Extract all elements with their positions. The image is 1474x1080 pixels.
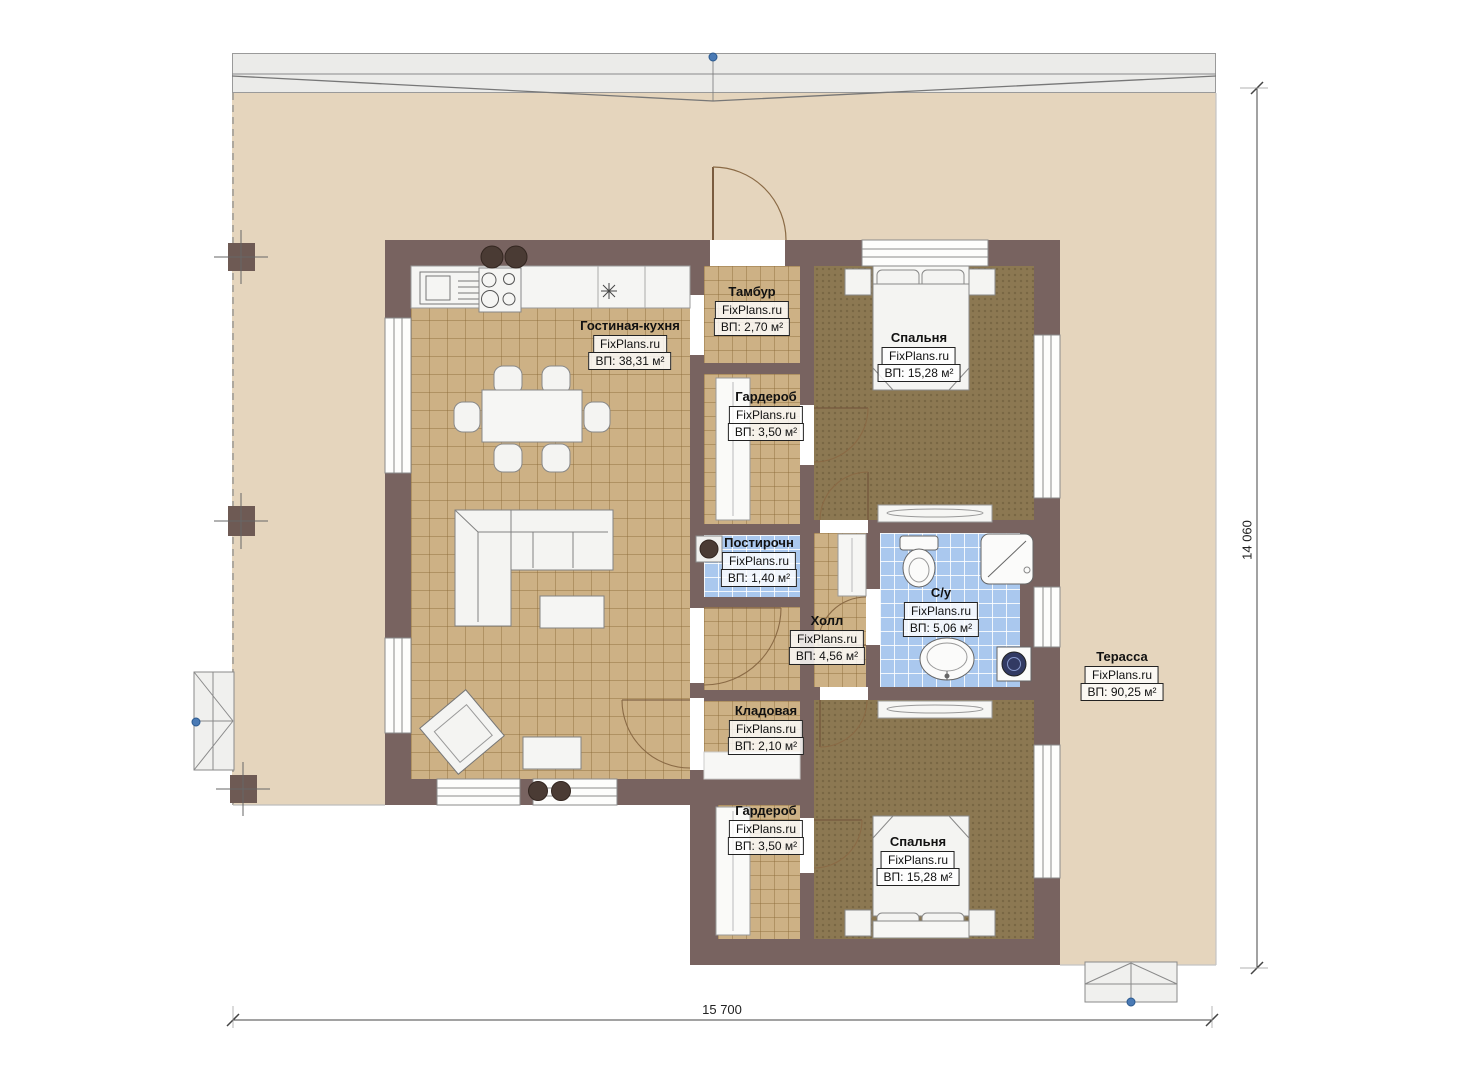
wall-right	[1034, 240, 1060, 965]
room-area: ВП: 4,56 м²	[789, 647, 865, 665]
room-area: ВП: 90,25 м²	[1081, 683, 1164, 701]
wall-wardrobe1-laundry	[704, 524, 800, 535]
wall-hall-storage	[704, 690, 800, 701]
wall-bathroom-left-lower	[866, 645, 880, 687]
room-label-storage: Кладовая FixPlans.ru ВП: 2,10 м²	[728, 703, 804, 755]
dimension-height: 14 060	[1240, 520, 1255, 560]
room-name: Спальня	[878, 330, 961, 345]
wall-bathroom-left-upper	[866, 533, 880, 589]
stairs-left-icon	[192, 672, 234, 770]
gap-hall-bedroom2	[820, 687, 868, 700]
wall-tambour-wardrobe1	[704, 363, 800, 374]
room-name: Постирочн	[721, 535, 797, 550]
room-label-bedroom-1: Спальня FixPlans.ru ВП: 15,28 м²	[878, 330, 961, 382]
room-area: ВП: 3,50 м²	[728, 837, 804, 855]
brand-watermark: FixPlans.ru	[904, 602, 978, 620]
wall-exterior-wardrobe2	[690, 805, 718, 939]
floor-plan: Гостиная-кухня FixPlans.ru ВП: 38,31 м² …	[0, 0, 1474, 1080]
brand-watermark: FixPlans.ru	[729, 406, 803, 424]
room-area: ВП: 5,06 м²	[903, 619, 979, 637]
brand-watermark: FixPlans.ru	[790, 630, 864, 648]
brand-watermark: FixPlans.ru	[729, 820, 803, 838]
room-name: С/у	[903, 585, 979, 600]
stairs-bottom-icon	[1085, 962, 1177, 1006]
room-label-living-kitchen: Гостиная-кухня FixPlans.ru ВП: 38,31 м²	[580, 318, 680, 370]
brand-watermark: FixPlans.ru	[729, 720, 803, 738]
dimension-width: 15 700	[702, 1002, 742, 1017]
room-label-laundry: Постирочн FixPlans.ru ВП: 1,40 м²	[721, 535, 797, 587]
room-label-terrace: Терасса FixPlans.ru ВП: 90,25 м²	[1081, 649, 1164, 701]
floor-bedroom-1	[814, 266, 1034, 520]
room-area: ВП: 15,28 м²	[877, 868, 960, 886]
room-area: ВП: 38,31 м²	[589, 352, 672, 370]
wall-storage-wardrobe2	[704, 779, 814, 805]
room-name: Гардероб	[728, 803, 804, 818]
wall-bottom-wing	[690, 939, 1060, 965]
room-name: Терасса	[1081, 649, 1164, 664]
room-name: Холл	[789, 613, 865, 628]
room-label-wardrobe-1: Гардероб FixPlans.ru ВП: 3,50 м²	[728, 389, 804, 441]
room-name: Спальня	[877, 834, 960, 849]
gap-hall-bedroom1	[820, 520, 868, 533]
brand-watermark: FixPlans.ru	[715, 301, 789, 319]
brand-watermark: FixPlans.ru	[593, 335, 667, 353]
wall-bathroom-right	[1020, 533, 1034, 687]
floor-hall	[704, 607, 800, 690]
gap-entrance-door	[710, 240, 785, 266]
room-area: ВП: 1,40 м²	[721, 569, 797, 587]
room-area: ВП: 3,50 м²	[728, 423, 804, 441]
room-label-tambour: Тамбур FixPlans.ru ВП: 2,70 м²	[714, 284, 790, 336]
brand-watermark: FixPlans.ru	[722, 552, 796, 570]
floor-bedroom-2	[814, 700, 1034, 939]
room-name: Кладовая	[728, 703, 804, 718]
wall-left	[385, 240, 411, 805]
wall-laundry-hall	[704, 597, 800, 607]
room-name: Гардероб	[728, 389, 804, 404]
room-label-bedroom-2: Спальня FixPlans.ru ВП: 15,28 м²	[877, 834, 960, 886]
gap-living-storage	[690, 698, 704, 770]
room-label-wardrobe-2: Гардероб FixPlans.ru ВП: 3,50 м²	[728, 803, 804, 855]
room-area: ВП: 2,10 м²	[728, 737, 804, 755]
roof-band	[232, 53, 1216, 93]
terrace-area-top	[232, 93, 1216, 240]
room-label-hall: Холл FixPlans.ru ВП: 4,56 м²	[789, 613, 865, 665]
brand-watermark: FixPlans.ru	[881, 851, 955, 869]
gap-living-hall	[690, 608, 704, 683]
terrace-area-left	[232, 240, 385, 805]
room-name: Гостиная-кухня	[580, 318, 680, 333]
room-area: ВП: 2,70 м²	[714, 318, 790, 336]
wall-bottom-left-block	[385, 779, 704, 805]
gap-living-tambour	[690, 295, 704, 355]
room-area: ВП: 15,28 м²	[878, 364, 961, 382]
brand-watermark: FixPlans.ru	[882, 347, 956, 365]
terrace-area-right	[1060, 240, 1216, 965]
brand-watermark: FixPlans.ru	[1085, 666, 1159, 684]
room-label-bathroom: С/у FixPlans.ru ВП: 5,06 м²	[903, 585, 979, 637]
room-name: Тамбур	[714, 284, 790, 299]
